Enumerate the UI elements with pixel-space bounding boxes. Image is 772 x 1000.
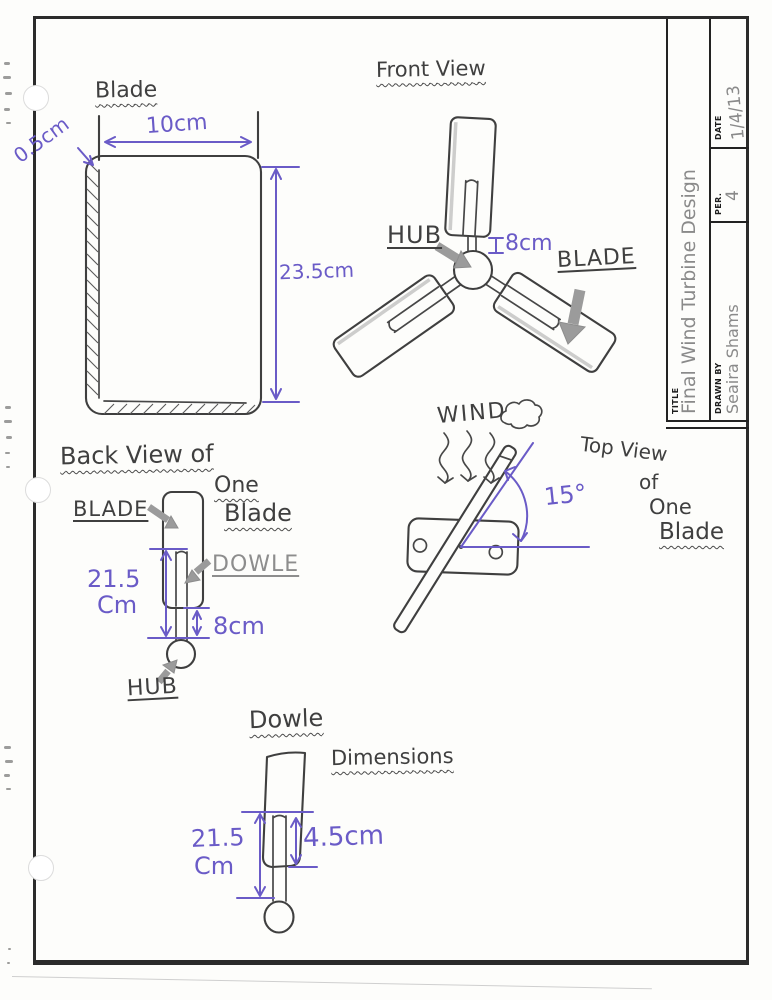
title-cell: TITLE Final Wind Turbine Design <box>668 19 710 419</box>
drawn-by-label: DRAWN BY <box>714 228 723 414</box>
front-blade-label: BLADE <box>556 244 636 273</box>
front-dowel-gap-label: 8cm <box>505 231 553 256</box>
back-view-heading-line1: Back View of <box>60 440 214 471</box>
hole-punch <box>23 85 49 111</box>
dowel-length-value: 21.5 <box>191 823 245 853</box>
back-length-unit: Cm <box>97 591 137 619</box>
top-view-heading-word3: One <box>649 495 692 519</box>
dowel-embed-label: 4.5cm <box>303 821 385 854</box>
per-label: PER. <box>714 154 723 215</box>
top-view-heading-word4: Blade <box>659 519 724 545</box>
blade-height-dim-label: 23.5cm <box>279 258 355 285</box>
back-view-heading-line3: Blade <box>224 499 292 527</box>
blade-detail-heading: Blade <box>95 77 158 103</box>
back-dowel-exposed-label: 8cm <box>213 612 265 640</box>
top-view-heading-word2: of <box>639 470 658 494</box>
drawn-by-value: Seaira Shams <box>723 228 742 414</box>
title-value: Final Wind Turbine Design <box>678 24 700 414</box>
angle-label: 15° <box>543 479 588 511</box>
dowel-length-unit: Cm <box>194 852 234 880</box>
front-hub-label: HUB <box>387 221 442 249</box>
per-cell: PER. 4 <box>711 149 749 220</box>
blade-width-dim-label: 10cm <box>145 110 208 139</box>
back-hub-label: HUB <box>126 674 178 702</box>
per-value: 4 <box>723 154 743 201</box>
hole-punch <box>25 477 51 503</box>
scanned-drawing-page: TITLE Final Wind Turbine Design DATE 1/4… <box>0 0 772 1000</box>
hole-punch <box>28 855 54 881</box>
date-cell: DATE 1/4/13 <box>711 19 749 145</box>
back-length-value: 21.5 <box>87 565 140 593</box>
dowel-heading-line2: Dimensions <box>331 744 454 770</box>
drawn-by-cell: DRAWN BY Seaira Shams <box>711 223 749 419</box>
back-blade-label: BLADE <box>73 497 148 521</box>
back-view-heading-line2: One <box>214 473 259 498</box>
dowel-heading-line1: Dowle <box>249 704 324 735</box>
front-view-heading: Front View <box>376 56 486 82</box>
back-dowel-label: DOWLE <box>212 552 299 577</box>
